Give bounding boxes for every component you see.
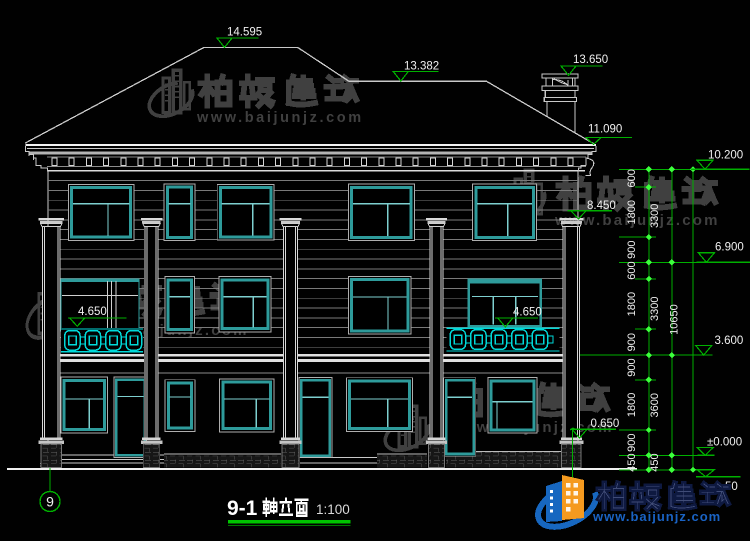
svg-text:3600: 3600 [649,393,661,417]
svg-text:900: 900 [626,241,638,259]
svg-text:±0.000: ±0.000 [707,436,742,448]
svg-text:4.650: 4.650 [513,307,542,319]
svg-text:450: 450 [626,453,638,471]
svg-text:0.650: 0.650 [591,418,620,430]
svg-text:3300: 3300 [649,204,661,228]
svg-text:900: 900 [626,434,638,452]
svg-text:14.595: 14.595 [227,27,262,39]
svg-text:900: 900 [626,333,638,351]
svg-text:1800: 1800 [626,292,638,316]
svg-text:3.600: 3.600 [715,335,744,347]
svg-text:6.900: 6.900 [715,242,744,254]
svg-text:600: 600 [626,261,638,279]
svg-text:1800: 1800 [626,200,638,224]
svg-text:1800: 1800 [626,393,638,417]
svg-text:13.650: 13.650 [573,54,608,66]
svg-text:450: 450 [649,453,661,471]
svg-text:10.200: 10.200 [708,150,743,162]
svg-text:3300: 3300 [649,296,661,320]
svg-text:8.450: 8.450 [587,200,616,212]
svg-text:600: 600 [626,169,638,187]
svg-text:9: 9 [46,494,54,510]
svg-text:9-1: 9-1 [227,497,258,520]
svg-text:www.baijunjz.com: www.baijunjz.com [592,509,721,524]
svg-text:1:100: 1:100 [316,502,350,517]
svg-text:11.090: 11.090 [588,124,622,136]
svg-text:900: 900 [626,358,638,376]
svg-text:www.baijunjz.com: www.baijunjz.com [196,110,364,126]
svg-text:4.650: 4.650 [78,306,107,318]
svg-text:13.382: 13.382 [404,61,439,73]
svg-text:10650: 10650 [669,304,681,335]
